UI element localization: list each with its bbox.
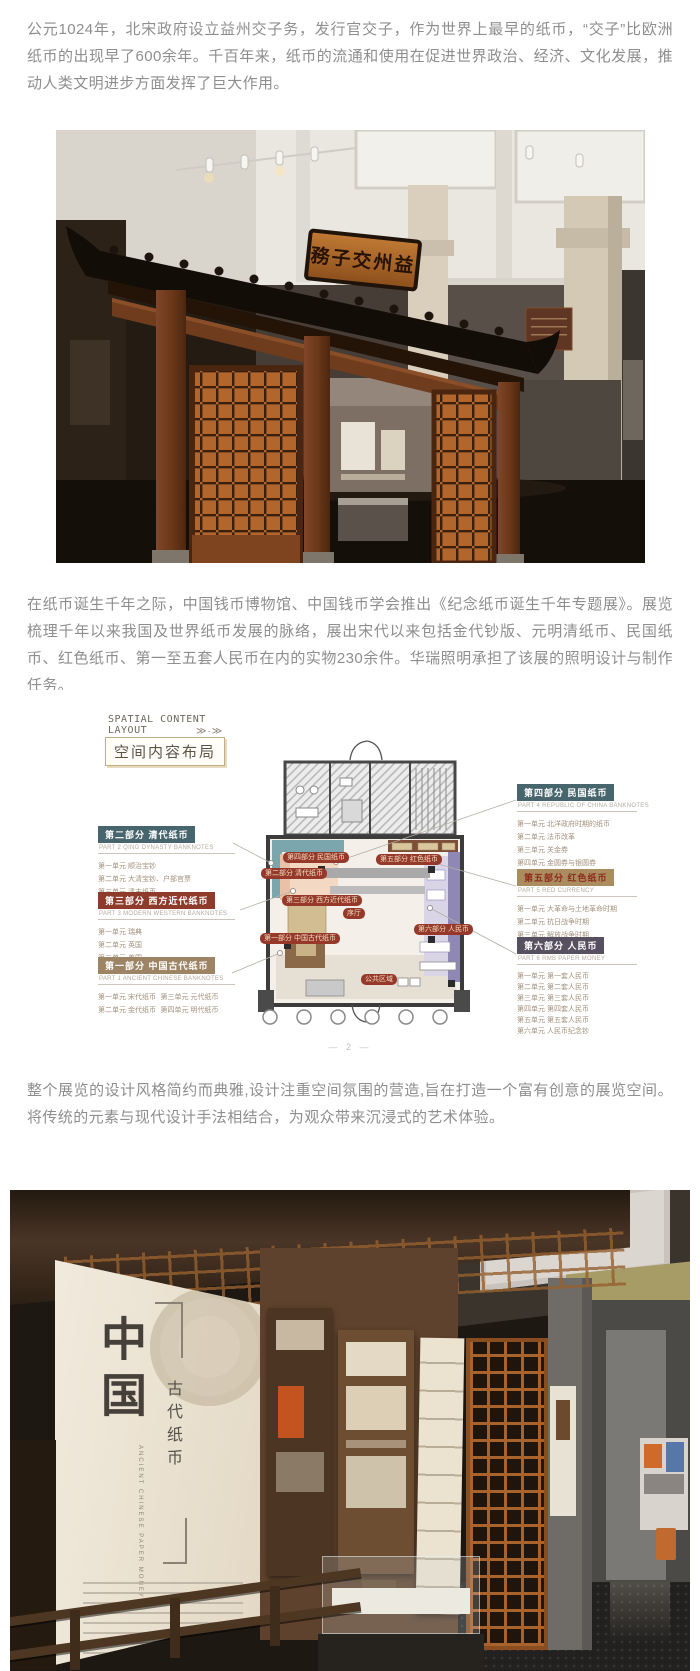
part-4-subtitle: PART 4 REPUBLIC OF CHINA BANKNOTES bbox=[517, 801, 637, 812]
part-2-item: 第二单元 大清宝钞、户部官票 bbox=[98, 873, 248, 886]
exhibit-poster bbox=[276, 1320, 324, 1350]
part-5-title: 第五部分 红色纸币 bbox=[517, 869, 614, 886]
part-6-subtitle: PART 6 RMB PAPER MONEY bbox=[517, 954, 637, 965]
part-5-block: 第五部分 红色纸币 PART 5 RED CURRENCY 第一单元 大革命与土… bbox=[517, 868, 667, 942]
photo-gallery-interior[interactable]: 中国 古代纸币 ANCIENT CHINESE PAPER MONEY bbox=[10, 1190, 690, 1671]
plan-label-part-6: 第六部分 人民币 bbox=[414, 924, 473, 935]
part-6-item: 第四单元 第四套人民币 bbox=[517, 1004, 667, 1015]
plan-label-part-4: 第四部分 民国纸币 bbox=[283, 852, 349, 863]
wall-title-en: ANCIENT CHINESE PAPER MONEY bbox=[137, 1445, 143, 1599]
floor-reflection bbox=[610, 1582, 670, 1642]
distant-poster-gray bbox=[644, 1474, 684, 1494]
photo-entrance-gate[interactable]: 務子交州益 bbox=[56, 130, 645, 563]
floorplan-title: 空间内容布局 bbox=[105, 737, 225, 766]
article-page: 公元1024年，北宋政府设立益州交子务，发行官交子，作为世界上最早的纸币，“交子… bbox=[0, 0, 700, 1671]
part-5-subtitle: PART 5 RED CURRENCY bbox=[517, 886, 637, 897]
plan-label-part-1: 第一部分 中国古代纸币 bbox=[260, 933, 340, 944]
part-6-item: 第一单元 第一套人民币 bbox=[517, 971, 667, 982]
floorplan-figure[interactable]: SPATIAL CONTENT LAYOUT ≫·≫ 空间内容布局 第二部分 清… bbox=[0, 690, 700, 1070]
dark-frame-left bbox=[10, 1440, 56, 1670]
bracket-line bbox=[163, 1562, 187, 1564]
railing-post bbox=[270, 1586, 280, 1646]
part-6-item: 第五单元 第五套人民币 bbox=[517, 1015, 667, 1026]
exhibit-caption-bar bbox=[346, 1440, 406, 1448]
exhibit-poster bbox=[346, 1342, 406, 1376]
part-1-item: 第四单元 明代纸币 bbox=[161, 1004, 224, 1017]
plan-label-hall: 序厅 bbox=[343, 908, 365, 919]
paragraph-design: 整个展览的设计风格简约而典雅,设计注重空间氛围的营造,旨在打造一个富有创意的展览… bbox=[27, 1077, 673, 1131]
distant-poster-orange bbox=[644, 1444, 662, 1468]
part-6-item: 第三单元 第三套人民币 bbox=[517, 993, 667, 1004]
header-arrows-icon: ≫·≫ bbox=[196, 726, 223, 737]
floorplan-header-en-line2: LAYOUT bbox=[108, 725, 268, 736]
part-3-subtitle: PART 3 MODERN WESTERN BANKNOTES bbox=[98, 909, 235, 920]
display-case-artifact bbox=[362, 1580, 396, 1588]
plan-label-public-area: 公共区域 bbox=[361, 974, 397, 985]
part-4-item: 第一单元 北洋政府时期的纸币 bbox=[517, 818, 667, 831]
part-1-subtitle: PART 1 ANCIENT CHINESE BANKNOTES bbox=[98, 974, 235, 985]
part-1-item: 第一单元 宋代纸币 bbox=[98, 991, 161, 1004]
bracket-line bbox=[181, 1302, 183, 1358]
part-1-item: 第三单元 元代纸币 bbox=[161, 991, 224, 1004]
part-5-item: 第一单元 大革命与土地革命时期 bbox=[517, 903, 667, 916]
part-6-title: 第六部分 人民币 bbox=[517, 937, 604, 954]
floorplan-header-en-line1: SPATIAL CONTENT bbox=[108, 714, 268, 725]
plan-label-part-3: 第三部分 西方近代纸币 bbox=[282, 895, 362, 906]
part-4-item: 第三单元 关金券 bbox=[517, 844, 667, 857]
part-1-title: 第一部分 中国古代纸币 bbox=[98, 957, 215, 974]
part-6-block: 第六部分 人民币 PART 6 RMB PAPER MONEY 第一单元 第一套… bbox=[517, 936, 667, 1037]
trash-bin bbox=[656, 1528, 676, 1560]
exhibit-poster bbox=[346, 1386, 406, 1430]
exhibit-figure-orange bbox=[278, 1386, 304, 1438]
gate-plaque: 務子交州益 bbox=[306, 230, 420, 289]
paragraph-intro: 公元1024年，北宋政府设立益州交子务，发行官交子，作为世界上最早的纸币，“交子… bbox=[27, 16, 673, 97]
part-3-title: 第三部分 西方近代纸币 bbox=[98, 892, 215, 909]
part-2-item: 第一单元 顺治宝钞 bbox=[98, 860, 248, 873]
bracket-line bbox=[155, 1302, 183, 1304]
wall-title-sub: 古代纸币 bbox=[160, 1380, 184, 1472]
lattice-door-left-icon bbox=[192, 368, 300, 563]
part-2-subtitle: PART 2 QING DYNASTY BANKNOTES bbox=[98, 843, 235, 854]
part-1-block: 第一部分 中国古代纸币 PART 1 ANCIENT CHINESE BANKN… bbox=[98, 956, 248, 1017]
paragraph-exhibition: 在纸币诞生千年之际，中国钱币博物馆、中国钱币学会推出《纪念纸币诞生千年专题展》。… bbox=[27, 591, 673, 699]
part-2-block: 第二部分 清代纸币 PART 2 QING DYNASTY BANKNOTES … bbox=[98, 825, 248, 899]
exhibit-poster bbox=[276, 1452, 324, 1492]
wall-title-cn: 中国 bbox=[87, 1315, 153, 1427]
part-2-title: 第二部分 清代纸币 bbox=[98, 826, 195, 843]
page-marker: — 2 — bbox=[0, 1042, 700, 1052]
railing-post bbox=[170, 1598, 180, 1658]
part-5-item: 第二单元 抗日战争时期 bbox=[517, 916, 667, 929]
part-4-item: 第二单元 法币改革 bbox=[517, 831, 667, 844]
part-3-item: 第一单元 瑞典 bbox=[98, 926, 248, 939]
colonnade-icon bbox=[263, 1010, 447, 1024]
exhibit-poster bbox=[346, 1456, 406, 1508]
floorplan-header: SPATIAL CONTENT LAYOUT ≫·≫ bbox=[108, 714, 268, 736]
plan-label-part-5: 第五部分 红色纸币 bbox=[376, 854, 442, 865]
plan-label-part-2: 第二部分 清代纸币 bbox=[261, 868, 327, 879]
lattice-door-right-icon bbox=[434, 392, 494, 563]
part-3-block: 第三部分 西方近代纸币 PART 3 MODERN WESTERN BANKNO… bbox=[98, 891, 248, 965]
railing-post bbox=[70, 1610, 80, 1670]
part-4-title: 第四部分 民国纸币 bbox=[517, 784, 614, 801]
bracket-line bbox=[185, 1518, 187, 1564]
part-4-block: 第四部分 民国纸币 PART 4 REPUBLIC OF CHINA BANKN… bbox=[517, 783, 667, 870]
display-case-base bbox=[318, 1634, 484, 1671]
gate-photo-illustration: 務子交州益 bbox=[56, 130, 645, 563]
part-6-item: 第六单元 人民币纪念钞 bbox=[517, 1026, 667, 1037]
part-6-item: 第二单元 第二套人民币 bbox=[517, 982, 667, 993]
hanging-panel-image bbox=[556, 1400, 570, 1440]
part-3-item: 第二单元 英国 bbox=[98, 939, 248, 952]
part-1-item: 第二单元 金代纸币 bbox=[98, 1004, 161, 1017]
distant-poster-blue bbox=[666, 1442, 684, 1472]
